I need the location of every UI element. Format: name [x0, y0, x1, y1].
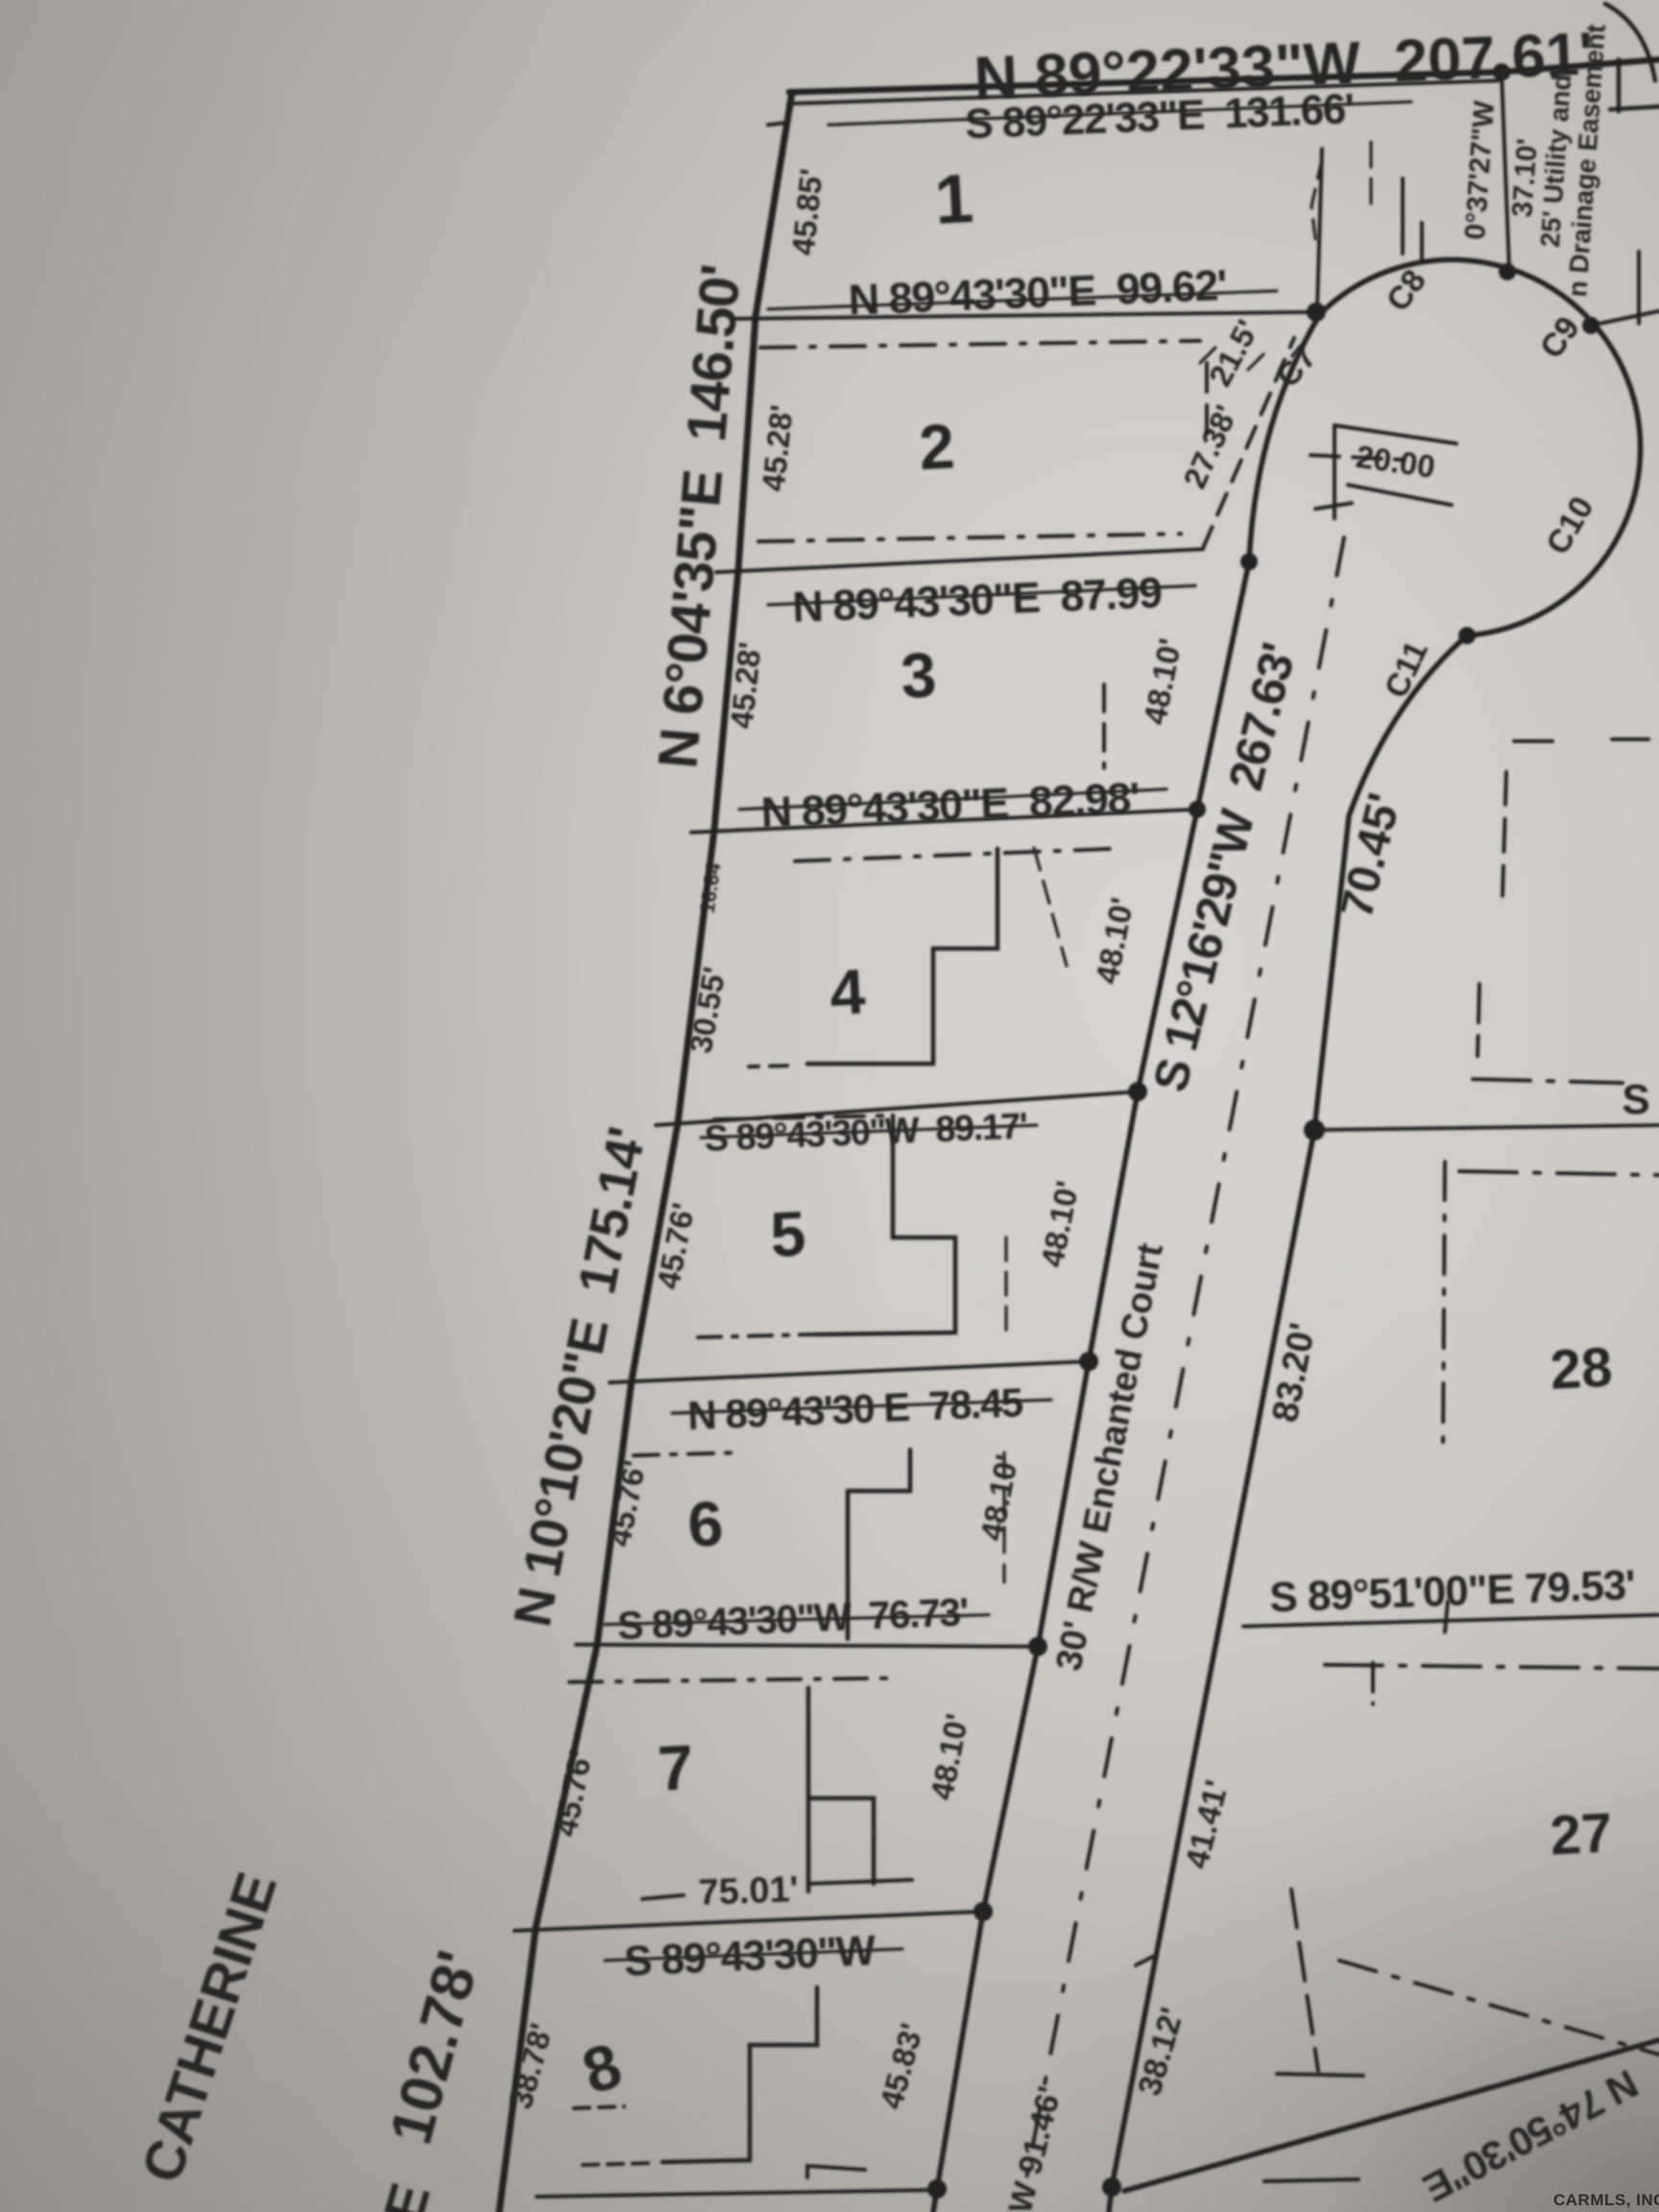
- svg-text:CARMLS, INC: CARMLS, INC: [1553, 2191, 1659, 2209]
- svg-text:4: 4: [829, 955, 868, 1028]
- svg-text:27: 27: [1549, 1801, 1614, 1866]
- svg-text:28: 28: [1549, 1335, 1614, 1401]
- svg-text:7: 7: [657, 1731, 696, 1804]
- svg-text:1: 1: [933, 160, 975, 239]
- svg-text:3: 3: [900, 638, 939, 711]
- svg-text:2: 2: [918, 410, 957, 483]
- svg-text:5: 5: [769, 1197, 808, 1270]
- svg-text:75.01': 75.01': [698, 1869, 800, 1913]
- svg-text:6: 6: [686, 1487, 726, 1560]
- svg-text:S: S: [1622, 1076, 1649, 1123]
